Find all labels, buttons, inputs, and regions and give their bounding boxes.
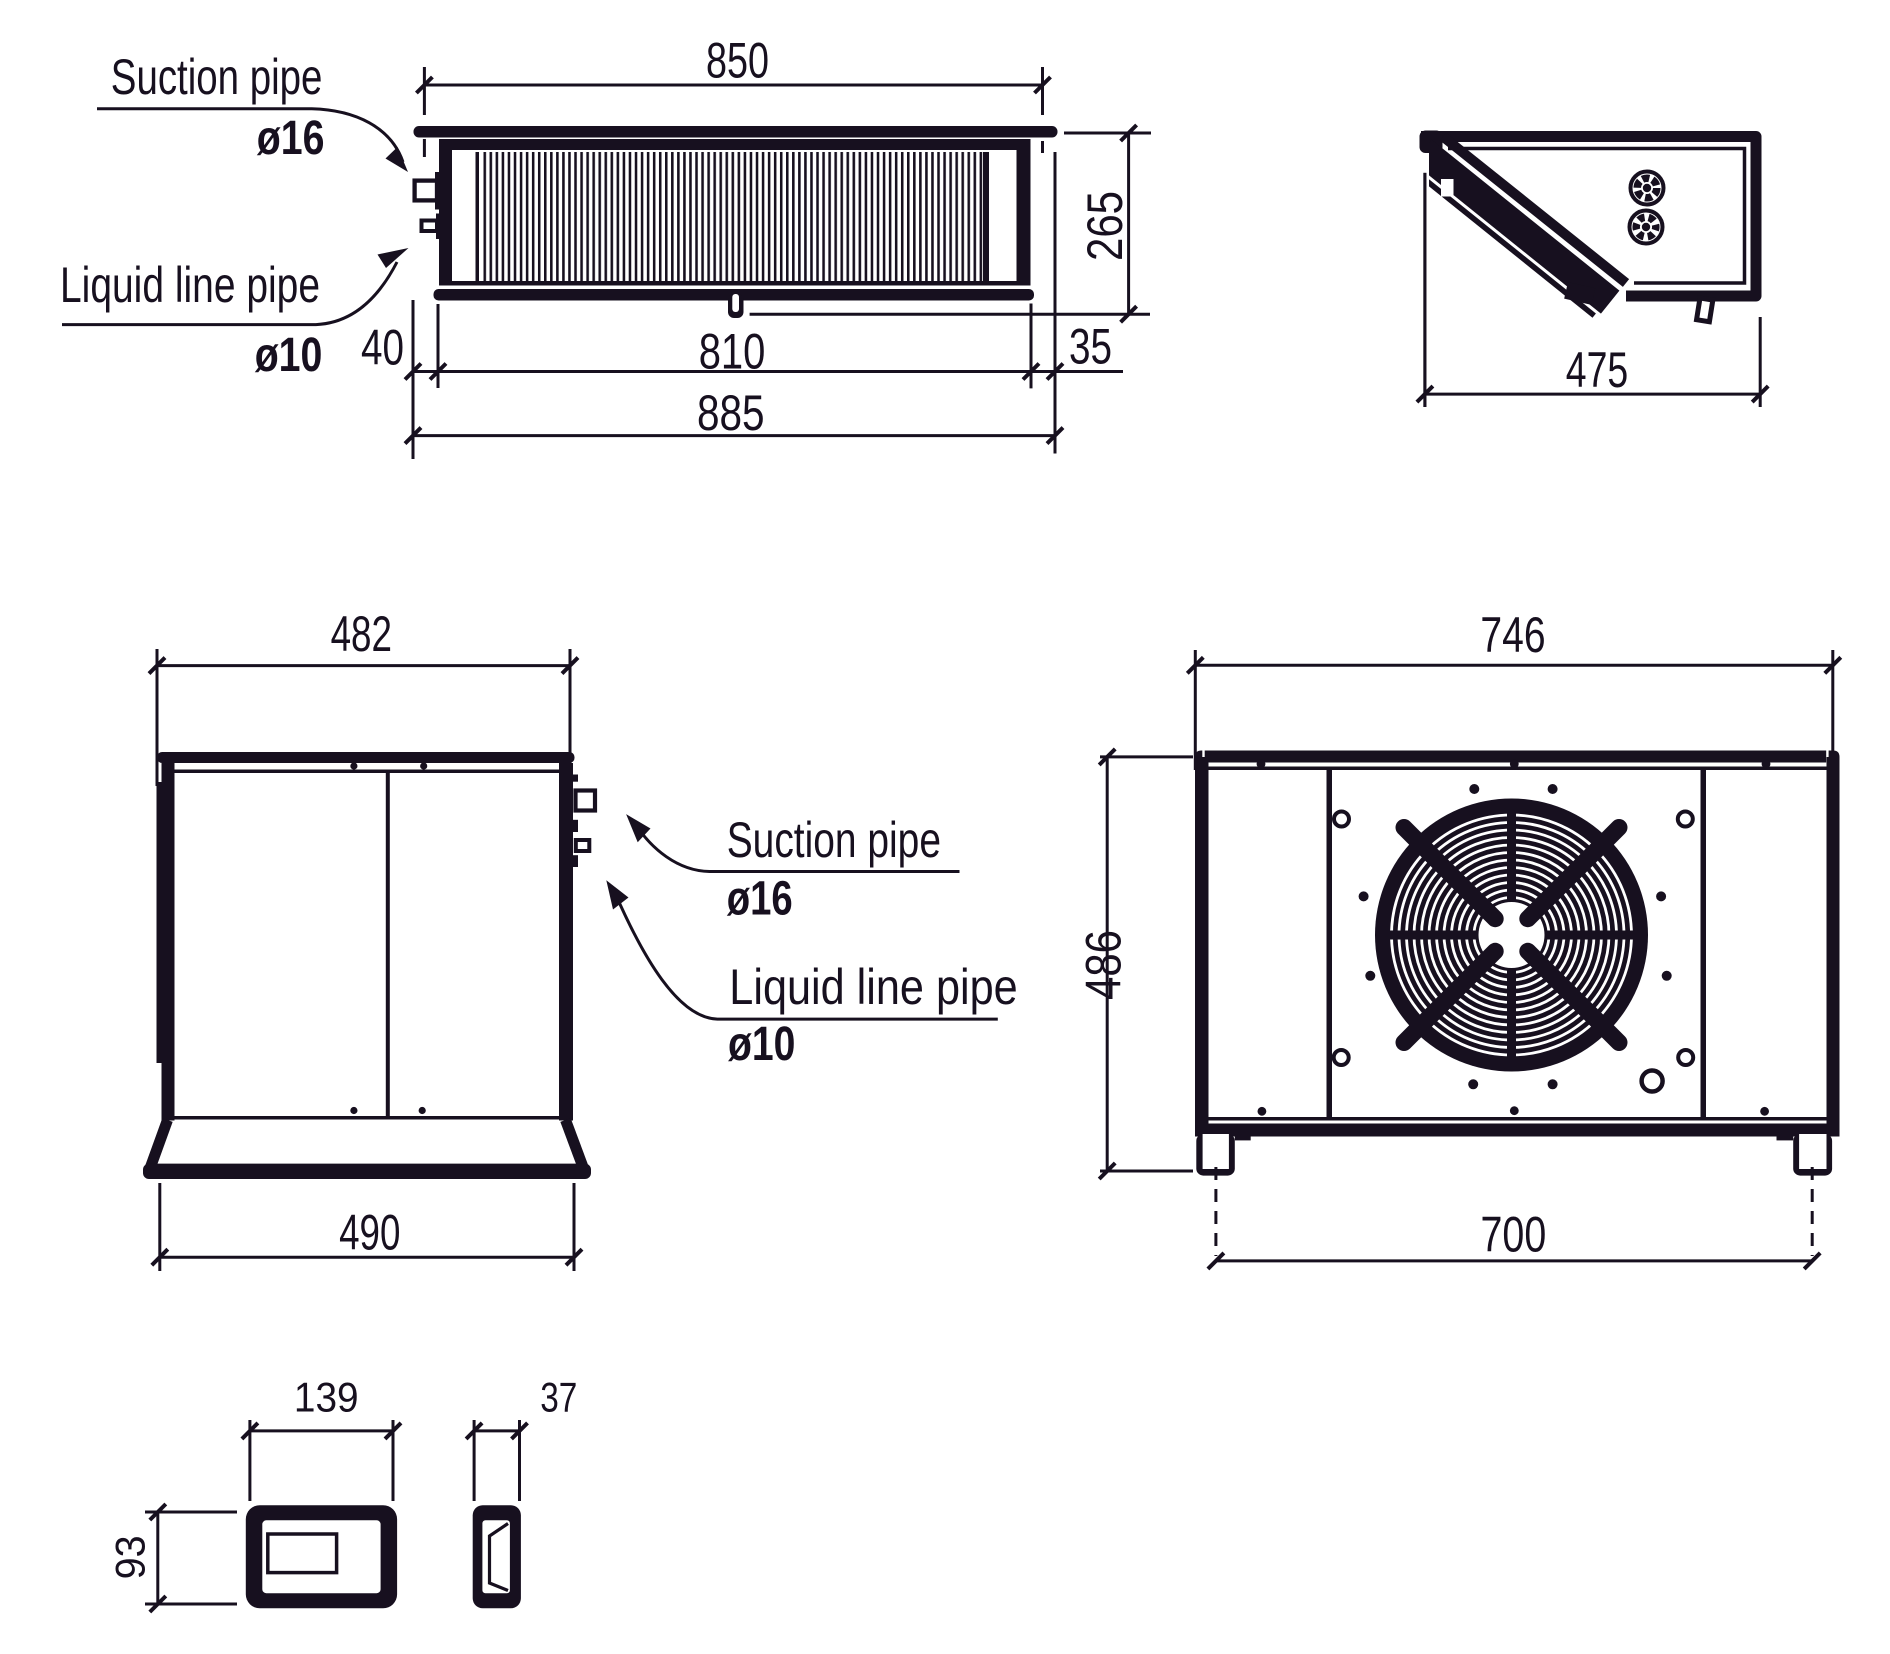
svg-text:37: 37	[540, 1374, 577, 1421]
svg-text:486: 486	[1076, 930, 1132, 1000]
svg-text:Liquid line pipe: Liquid line pipe	[729, 959, 1017, 1015]
svg-text:746: 746	[1480, 607, 1545, 663]
svg-text:ø10: ø10	[255, 329, 323, 382]
svg-text:Suction pipe: Suction pipe	[111, 49, 323, 105]
svg-text:35: 35	[1069, 319, 1112, 375]
svg-text:139: 139	[294, 1374, 359, 1421]
svg-text:700: 700	[1481, 1207, 1547, 1263]
svg-text:ø10: ø10	[728, 1018, 795, 1071]
svg-text:ø16: ø16	[727, 873, 793, 926]
svg-text:475: 475	[1566, 342, 1628, 398]
svg-text:850: 850	[706, 33, 769, 89]
svg-text:40: 40	[361, 320, 404, 376]
svg-text:93: 93	[107, 1535, 154, 1579]
svg-text:810: 810	[699, 324, 766, 380]
svg-text:885: 885	[697, 385, 765, 441]
svg-text:ø16: ø16	[257, 112, 325, 165]
svg-text:Liquid line pipe: Liquid line pipe	[60, 257, 320, 313]
svg-text:482: 482	[331, 606, 392, 662]
svg-text:265: 265	[1077, 191, 1133, 261]
svg-text:Suction pipe: Suction pipe	[727, 812, 941, 868]
svg-text:490: 490	[339, 1205, 400, 1261]
